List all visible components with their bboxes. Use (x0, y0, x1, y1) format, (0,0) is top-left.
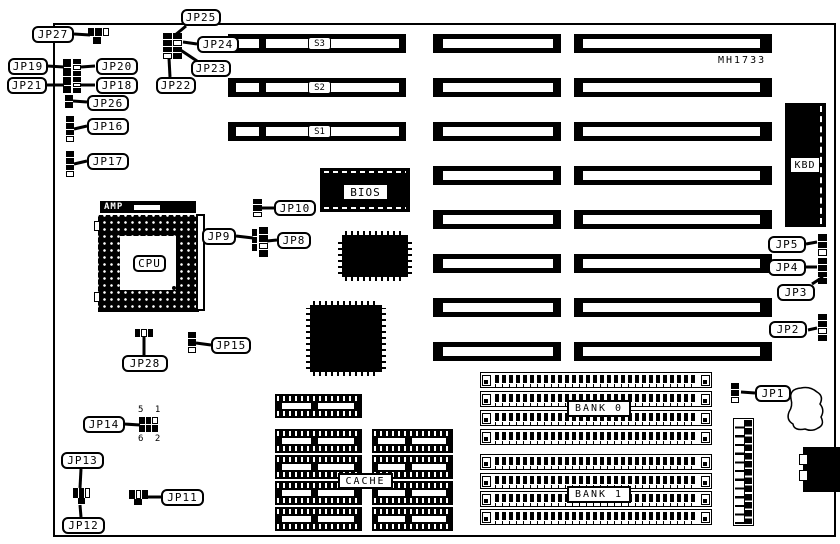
chip-pins (374, 457, 451, 462)
simm-clip (482, 432, 491, 443)
jumper-block (129, 490, 148, 499)
jumper-block (135, 329, 153, 337)
jumper-pin (818, 314, 827, 320)
qfp-pins (408, 238, 412, 274)
simm-clip (482, 457, 491, 468)
jumper-block (88, 28, 109, 36)
callout-jp14: JP14 (83, 416, 125, 433)
simm-socket (480, 372, 712, 388)
jumper-pin (173, 40, 182, 46)
cpu-socket-top-bar: AMP (100, 201, 196, 213)
power-connector-pins (735, 420, 745, 524)
simm-pins (495, 476, 697, 484)
bank1-label: BANK 1 (567, 486, 631, 503)
isa-slot-segment (433, 122, 561, 141)
jumper-pin (173, 47, 182, 53)
jumper-block (139, 417, 158, 432)
jumper-block (63, 77, 71, 93)
jumper-pin (66, 158, 74, 164)
jumper-pin (152, 417, 158, 424)
jumper-pin (259, 250, 268, 257)
jumper-block (252, 229, 257, 251)
callout-jp4: JP4 (768, 259, 806, 276)
jumper-pin (103, 28, 109, 36)
power-connector (733, 418, 754, 526)
jumper-pin (139, 425, 145, 432)
jumper-pin (79, 488, 84, 498)
simm-pins (495, 503, 697, 506)
callout-jp28: JP28 (122, 355, 168, 372)
jumper-pin (152, 425, 158, 432)
chip-socket-bar (412, 516, 446, 522)
jumper-pin (142, 490, 148, 499)
jumper-pin (65, 95, 73, 101)
jumper-pin (253, 199, 262, 204)
callout-jp24: JP24 (197, 36, 239, 53)
callout-jp1: JP1 (755, 385, 791, 402)
jumper-pin (73, 88, 81, 93)
jumper-pin (252, 229, 257, 236)
jumper-pin (259, 227, 268, 234)
slot-opening (443, 127, 553, 136)
jumper-pin (134, 499, 142, 505)
keyboard-connector-edge (820, 106, 822, 224)
slot-opening (443, 303, 553, 312)
jumper-pin (163, 53, 172, 59)
callout-jp17: JP17 (87, 153, 129, 170)
slot-opening (443, 215, 553, 224)
jumper-pin (73, 59, 81, 64)
qfp-pins (382, 308, 386, 369)
cpu-socket-notch (94, 292, 100, 302)
chip-pins (277, 396, 360, 401)
kbd-label: KBD (790, 157, 820, 173)
jumper-pin (146, 425, 152, 432)
slot-opening (583, 303, 760, 312)
jumper-pin (63, 59, 71, 67)
chip-pins (374, 446, 451, 451)
jumper-block (63, 59, 71, 76)
simm-pins (495, 375, 697, 383)
simm-clip (701, 375, 710, 386)
callout-jp25: JP25 (181, 9, 221, 26)
simm-clip (701, 512, 710, 523)
isa-slot-segment (574, 254, 772, 273)
jumper-pin (818, 335, 827, 341)
jumper-block (163, 33, 182, 59)
callout-jp5: JP5 (768, 236, 806, 253)
simm-clip (701, 413, 710, 424)
jumper-pin (173, 33, 182, 39)
jumper-block (818, 258, 827, 284)
bank0-label: BANK 0 (567, 400, 631, 417)
isa-slot-segment (433, 298, 561, 317)
jumper-pin (73, 83, 81, 88)
chip-pins (277, 498, 360, 503)
jumper-pin (63, 86, 71, 94)
slot-opening (443, 259, 553, 268)
slot-label-s1: S1 (308, 125, 331, 138)
jumper-pin (163, 47, 172, 53)
jumper-block (65, 95, 73, 108)
isa-slot-segment (433, 254, 561, 273)
slot-label-s2: S2 (308, 81, 331, 94)
chip-socket-bar (412, 464, 446, 470)
din-connector (803, 447, 840, 492)
din-connector-pin (799, 470, 808, 481)
callout-jp19: JP19 (8, 58, 48, 75)
qfp-chip (342, 235, 408, 277)
jumper-pin (73, 71, 81, 76)
jumper-block (66, 116, 74, 142)
callout-jp11: JP11 (161, 489, 204, 506)
jumper-pin (85, 488, 90, 498)
callout-jp8: JP8 (277, 232, 311, 249)
jumper-block (253, 199, 262, 217)
bios-label: BIOS (343, 184, 388, 200)
chip-socket-bar (412, 490, 446, 496)
isa-slot-segment (574, 210, 772, 229)
jumper-pin (731, 397, 739, 403)
jumper-pin (259, 243, 268, 250)
callout-jp10: JP10 (274, 200, 316, 216)
jumper-pin (818, 234, 827, 241)
jumper-pin (252, 244, 257, 251)
isa-slot-segment (574, 122, 772, 141)
jumper-pin (65, 102, 73, 108)
slot-opening (583, 39, 760, 48)
cpu-socket-notch (94, 221, 100, 231)
jumper-pin (818, 278, 827, 284)
jumper-pin (63, 68, 71, 76)
jumper-pin (146, 417, 152, 424)
jumper-pin (818, 328, 827, 334)
isa-slot-segment (433, 78, 561, 97)
chip-socket-bar (318, 464, 355, 470)
qfp-pins (345, 231, 405, 235)
slot-label-s3: S3 (308, 37, 331, 50)
slot-opening (236, 127, 259, 136)
simm-pins (495, 457, 697, 465)
jumper-block (818, 234, 827, 256)
jumper-pin (66, 165, 74, 171)
jumper-pin (139, 417, 145, 424)
jumper-pin (129, 490, 135, 499)
jumper-pin (731, 383, 739, 389)
cache-chip (275, 429, 362, 453)
power-connector-pins (745, 420, 752, 524)
simm-pins (495, 384, 697, 387)
jumper-pin (141, 329, 146, 337)
simm-pins (495, 512, 697, 520)
jumper-block (78, 498, 85, 504)
qfp-pins (345, 277, 405, 281)
jumper-pin (66, 151, 74, 157)
jumper-pin (173, 53, 182, 59)
slot-opening (583, 127, 760, 136)
simm-pins (495, 441, 697, 444)
bios-pin-row (324, 171, 406, 173)
simm-socket (480, 454, 712, 470)
jumper-pin (818, 258, 827, 264)
chip-pins (374, 431, 451, 436)
isa-slot-segment (433, 34, 561, 53)
chip-socket-bar (378, 516, 405, 522)
chip-socket-bar (318, 403, 355, 409)
slot-opening (266, 127, 399, 136)
chip-pins (374, 509, 451, 514)
jumper-pin (66, 123, 74, 129)
jumper-block (134, 499, 142, 505)
qfp-pins (313, 372, 379, 376)
jumper-pin (818, 272, 827, 278)
jumper-pin (163, 40, 172, 46)
isa-slot-segment (574, 166, 772, 185)
jumper-pin (66, 130, 74, 136)
jp14-pin-numbers-bottom: 6 2 (138, 434, 160, 444)
simm-socket (480, 429, 712, 445)
callout-jp15: JP15 (211, 337, 251, 354)
chip-socket-bar (282, 516, 311, 522)
chip-socket-bar (412, 438, 446, 444)
jumper-pin (188, 339, 196, 345)
callout-jp20: JP20 (96, 58, 138, 75)
jumper-pin (188, 332, 196, 338)
chip-socket-bar (318, 438, 355, 444)
isa-slot-segment (574, 34, 772, 53)
slot-opening (443, 83, 553, 92)
callout-jp9: JP9 (202, 228, 236, 245)
isa-slot-segment (574, 78, 772, 97)
chip-pins (277, 509, 360, 514)
chip-socket-bar (378, 464, 405, 470)
jumper-pin (259, 235, 268, 242)
jumper-block (73, 77, 81, 93)
bios-pin-row (324, 207, 406, 209)
qfp-chip (310, 305, 382, 372)
slot-opening (236, 83, 259, 92)
isa-slot-segment (433, 166, 561, 185)
cache-chip (275, 394, 362, 418)
cache-chip (372, 507, 453, 531)
callout-jp18: JP18 (96, 77, 138, 94)
jumper-pin (95, 28, 101, 36)
chip-socket-bar (378, 490, 405, 496)
jumper-pin (188, 347, 196, 353)
simm-clip (701, 494, 710, 505)
slot-opening (443, 171, 553, 180)
jumper-pin (88, 28, 94, 36)
qfp-pins (338, 238, 342, 274)
jumper-pin (818, 242, 827, 249)
cache-chip (372, 429, 453, 453)
qfp-pins (306, 308, 310, 369)
jumper-block (731, 383, 739, 403)
slot-opening (443, 347, 553, 356)
jumper-block (818, 314, 827, 341)
chip-socket-bar (318, 516, 355, 522)
chip-socket-bar (282, 438, 311, 444)
callout-jp13: JP13 (61, 452, 104, 469)
chip-pins (374, 498, 451, 503)
jumper-pin (66, 116, 74, 122)
slot-opening (583, 347, 760, 356)
simm-clip (482, 394, 491, 405)
callout-jp3: JP3 (777, 284, 815, 301)
jumper-pin (73, 65, 81, 70)
simm-clip (701, 394, 710, 405)
chip-pins (277, 446, 360, 451)
simm-socket (480, 509, 712, 525)
cpu-socket: CPU (98, 215, 199, 312)
amp-brand-label: AMP (104, 202, 123, 212)
jumper-block (188, 332, 196, 353)
jumper-pin (73, 488, 78, 498)
simm-clip (701, 457, 710, 468)
chip-socket-bar (282, 403, 311, 409)
amp-bar-slot (134, 205, 160, 210)
din-connector-pin (799, 454, 808, 465)
jumper-pin (731, 390, 739, 396)
simm-pins (495, 521, 697, 524)
jumper-pin (818, 321, 827, 327)
jumper-pin (78, 498, 85, 504)
chip-socket-bar (282, 490, 311, 496)
slot-opening (583, 215, 760, 224)
slot-opening (266, 83, 399, 92)
chip-socket-bar (282, 464, 311, 470)
jumper-block (93, 37, 101, 44)
jumper-pin (66, 171, 74, 177)
isa-slot-segment (574, 298, 772, 317)
jumper-pin (163, 33, 172, 39)
jumper-block (73, 59, 81, 76)
callout-jp2: JP2 (769, 321, 807, 338)
chip-pins (277, 457, 360, 462)
jumper-pin (93, 37, 101, 44)
simm-pins (495, 466, 697, 469)
jumper-pin (253, 212, 262, 217)
slot-opening (266, 39, 399, 48)
jumper-block (259, 227, 268, 257)
callout-jp21: JP21 (7, 77, 47, 94)
chip-pins (374, 524, 451, 529)
simm-clip (701, 476, 710, 487)
jumper-pin (818, 249, 827, 256)
cache-chip (275, 507, 362, 531)
jumper-block (73, 488, 90, 498)
jumper-pin (73, 77, 81, 82)
jumper-pin (135, 329, 140, 337)
chip-socket-bar (378, 438, 405, 444)
jumper-pin (148, 329, 153, 337)
jumper-pin (253, 205, 262, 210)
isa-slot-segment (433, 210, 561, 229)
callout-jp22: JP22 (156, 77, 196, 94)
jumper-pin (66, 136, 74, 142)
cache-label: CACHE (338, 473, 393, 489)
board-model: MH1733 (718, 55, 766, 66)
jp14-pin-numbers-top: 5 1 (138, 405, 160, 415)
slot-opening (236, 39, 259, 48)
jumper-pin (252, 237, 257, 244)
qfp-pins (313, 301, 379, 305)
simm-clip (482, 476, 491, 487)
callout-jp27: JP27 (32, 26, 74, 43)
callout-jp23: JP23 (191, 60, 231, 77)
cpu-label: CPU (133, 255, 166, 272)
motherboard-diagram: AMP CPU BIOS KBD MH1733 S3 S2 S1 BANK 0 … (0, 0, 840, 544)
slot-opening (583, 83, 760, 92)
isa-slot-segment (433, 342, 561, 361)
simm-clip (482, 375, 491, 386)
simm-clip (482, 413, 491, 424)
callout-jp16: JP16 (87, 118, 129, 135)
chip-pins (277, 524, 360, 529)
isa-slot-segment (574, 342, 772, 361)
chip-socket-bar (318, 490, 355, 496)
simm-clip (701, 432, 710, 443)
jumper-block (66, 151, 74, 177)
simm-clip (482, 494, 491, 505)
jumper-pin (818, 265, 827, 271)
simm-pins (495, 422, 697, 425)
chip-pins (277, 411, 360, 416)
simm-clip (482, 512, 491, 523)
slot-opening (443, 39, 553, 48)
slot-opening (583, 171, 760, 180)
chip-pins (277, 431, 360, 436)
simm-pins (495, 432, 697, 440)
slot-opening (583, 259, 760, 268)
jumper-pin (63, 77, 71, 85)
callout-jp26: JP26 (87, 95, 129, 111)
cpu-pin1-marker (172, 286, 176, 290)
callout-jp12: JP12 (62, 517, 105, 534)
jumper-pin (136, 490, 142, 499)
